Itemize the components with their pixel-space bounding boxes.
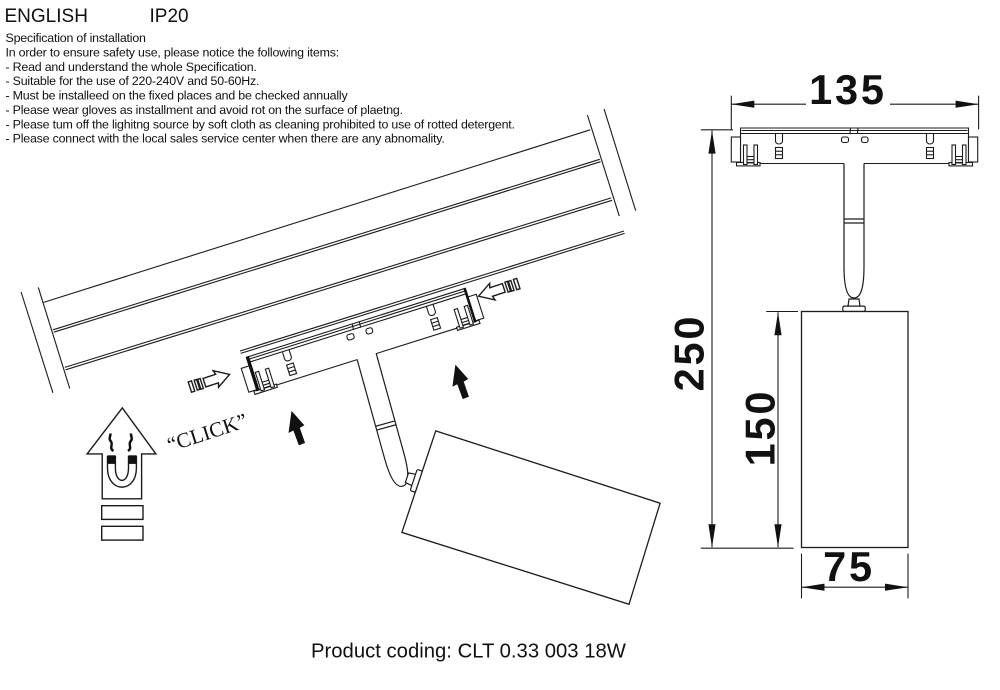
svg-text:“CLICK”: “CLICK” xyxy=(164,408,250,456)
svg-text:- Please tum off the lighitng: - Please tum off the lighitng source by … xyxy=(6,117,515,131)
svg-text:ENGLISH: ENGLISH xyxy=(5,6,88,27)
svg-text:- Suitable for the use of 220-: - Suitable for the use of 220-240V and 5… xyxy=(6,74,260,88)
svg-text:IP20: IP20 xyxy=(150,6,189,27)
svg-text:- Read and understand the whol: - Read and understand the whole Specific… xyxy=(6,60,257,74)
svg-text:250: 250 xyxy=(666,314,713,392)
svg-text:- Please wear gloves as instal: - Please wear gloves as installment and … xyxy=(6,103,403,117)
svg-text:- Please connect with the loca: - Please connect with the local sales se… xyxy=(6,132,445,146)
svg-text:150: 150 xyxy=(737,389,784,467)
svg-text:Specification of installation: Specification of installation xyxy=(6,31,147,45)
svg-text:In order to ensure safety use,: In order to ensure safety use, please no… xyxy=(6,46,339,60)
svg-text:75: 75 xyxy=(823,543,875,590)
svg-text:- Must be installeed on the fi: - Must be installeed on the fixed places… xyxy=(6,89,349,103)
svg-text:135: 135 xyxy=(809,66,887,113)
svg-text:Product coding: CLT 0.33 003 1: Product coding: CLT 0.33 003 18W xyxy=(311,640,627,662)
